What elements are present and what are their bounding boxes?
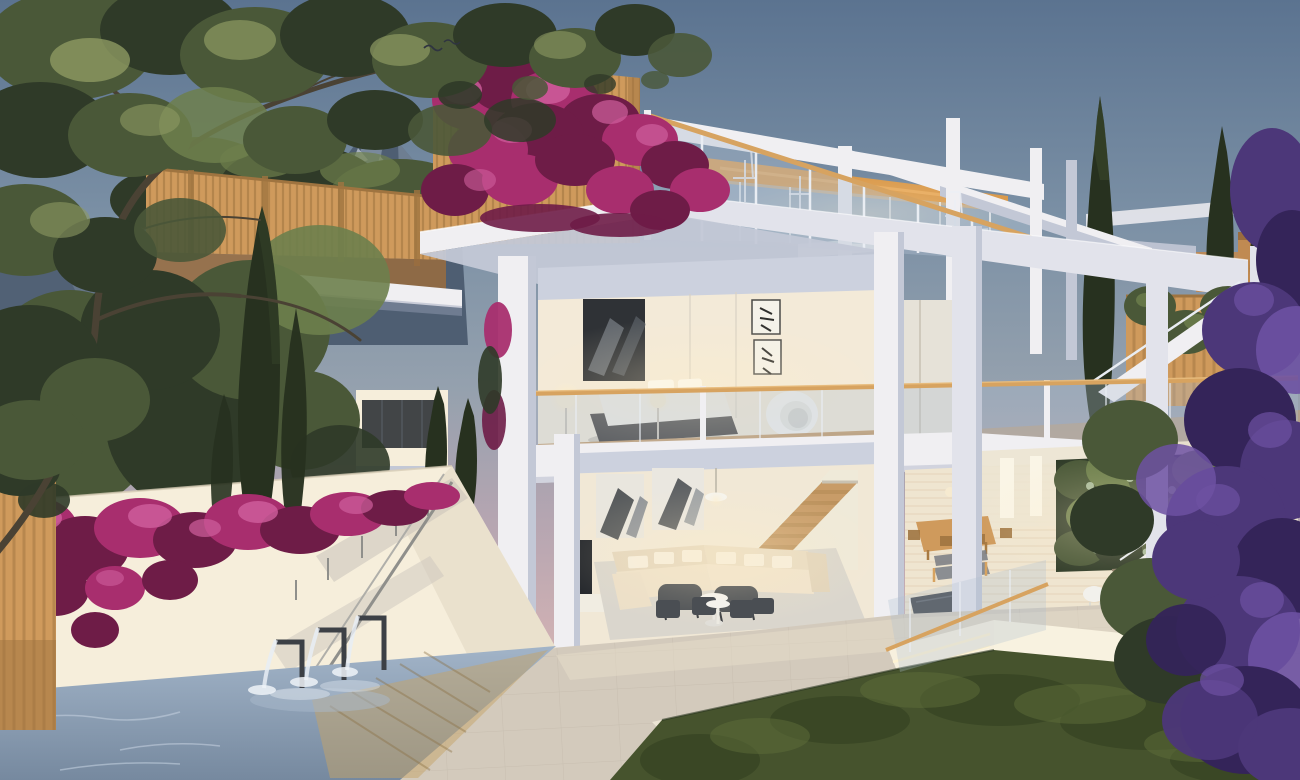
architectural-render [0,0,1300,780]
villa-scene [0,0,1300,780]
